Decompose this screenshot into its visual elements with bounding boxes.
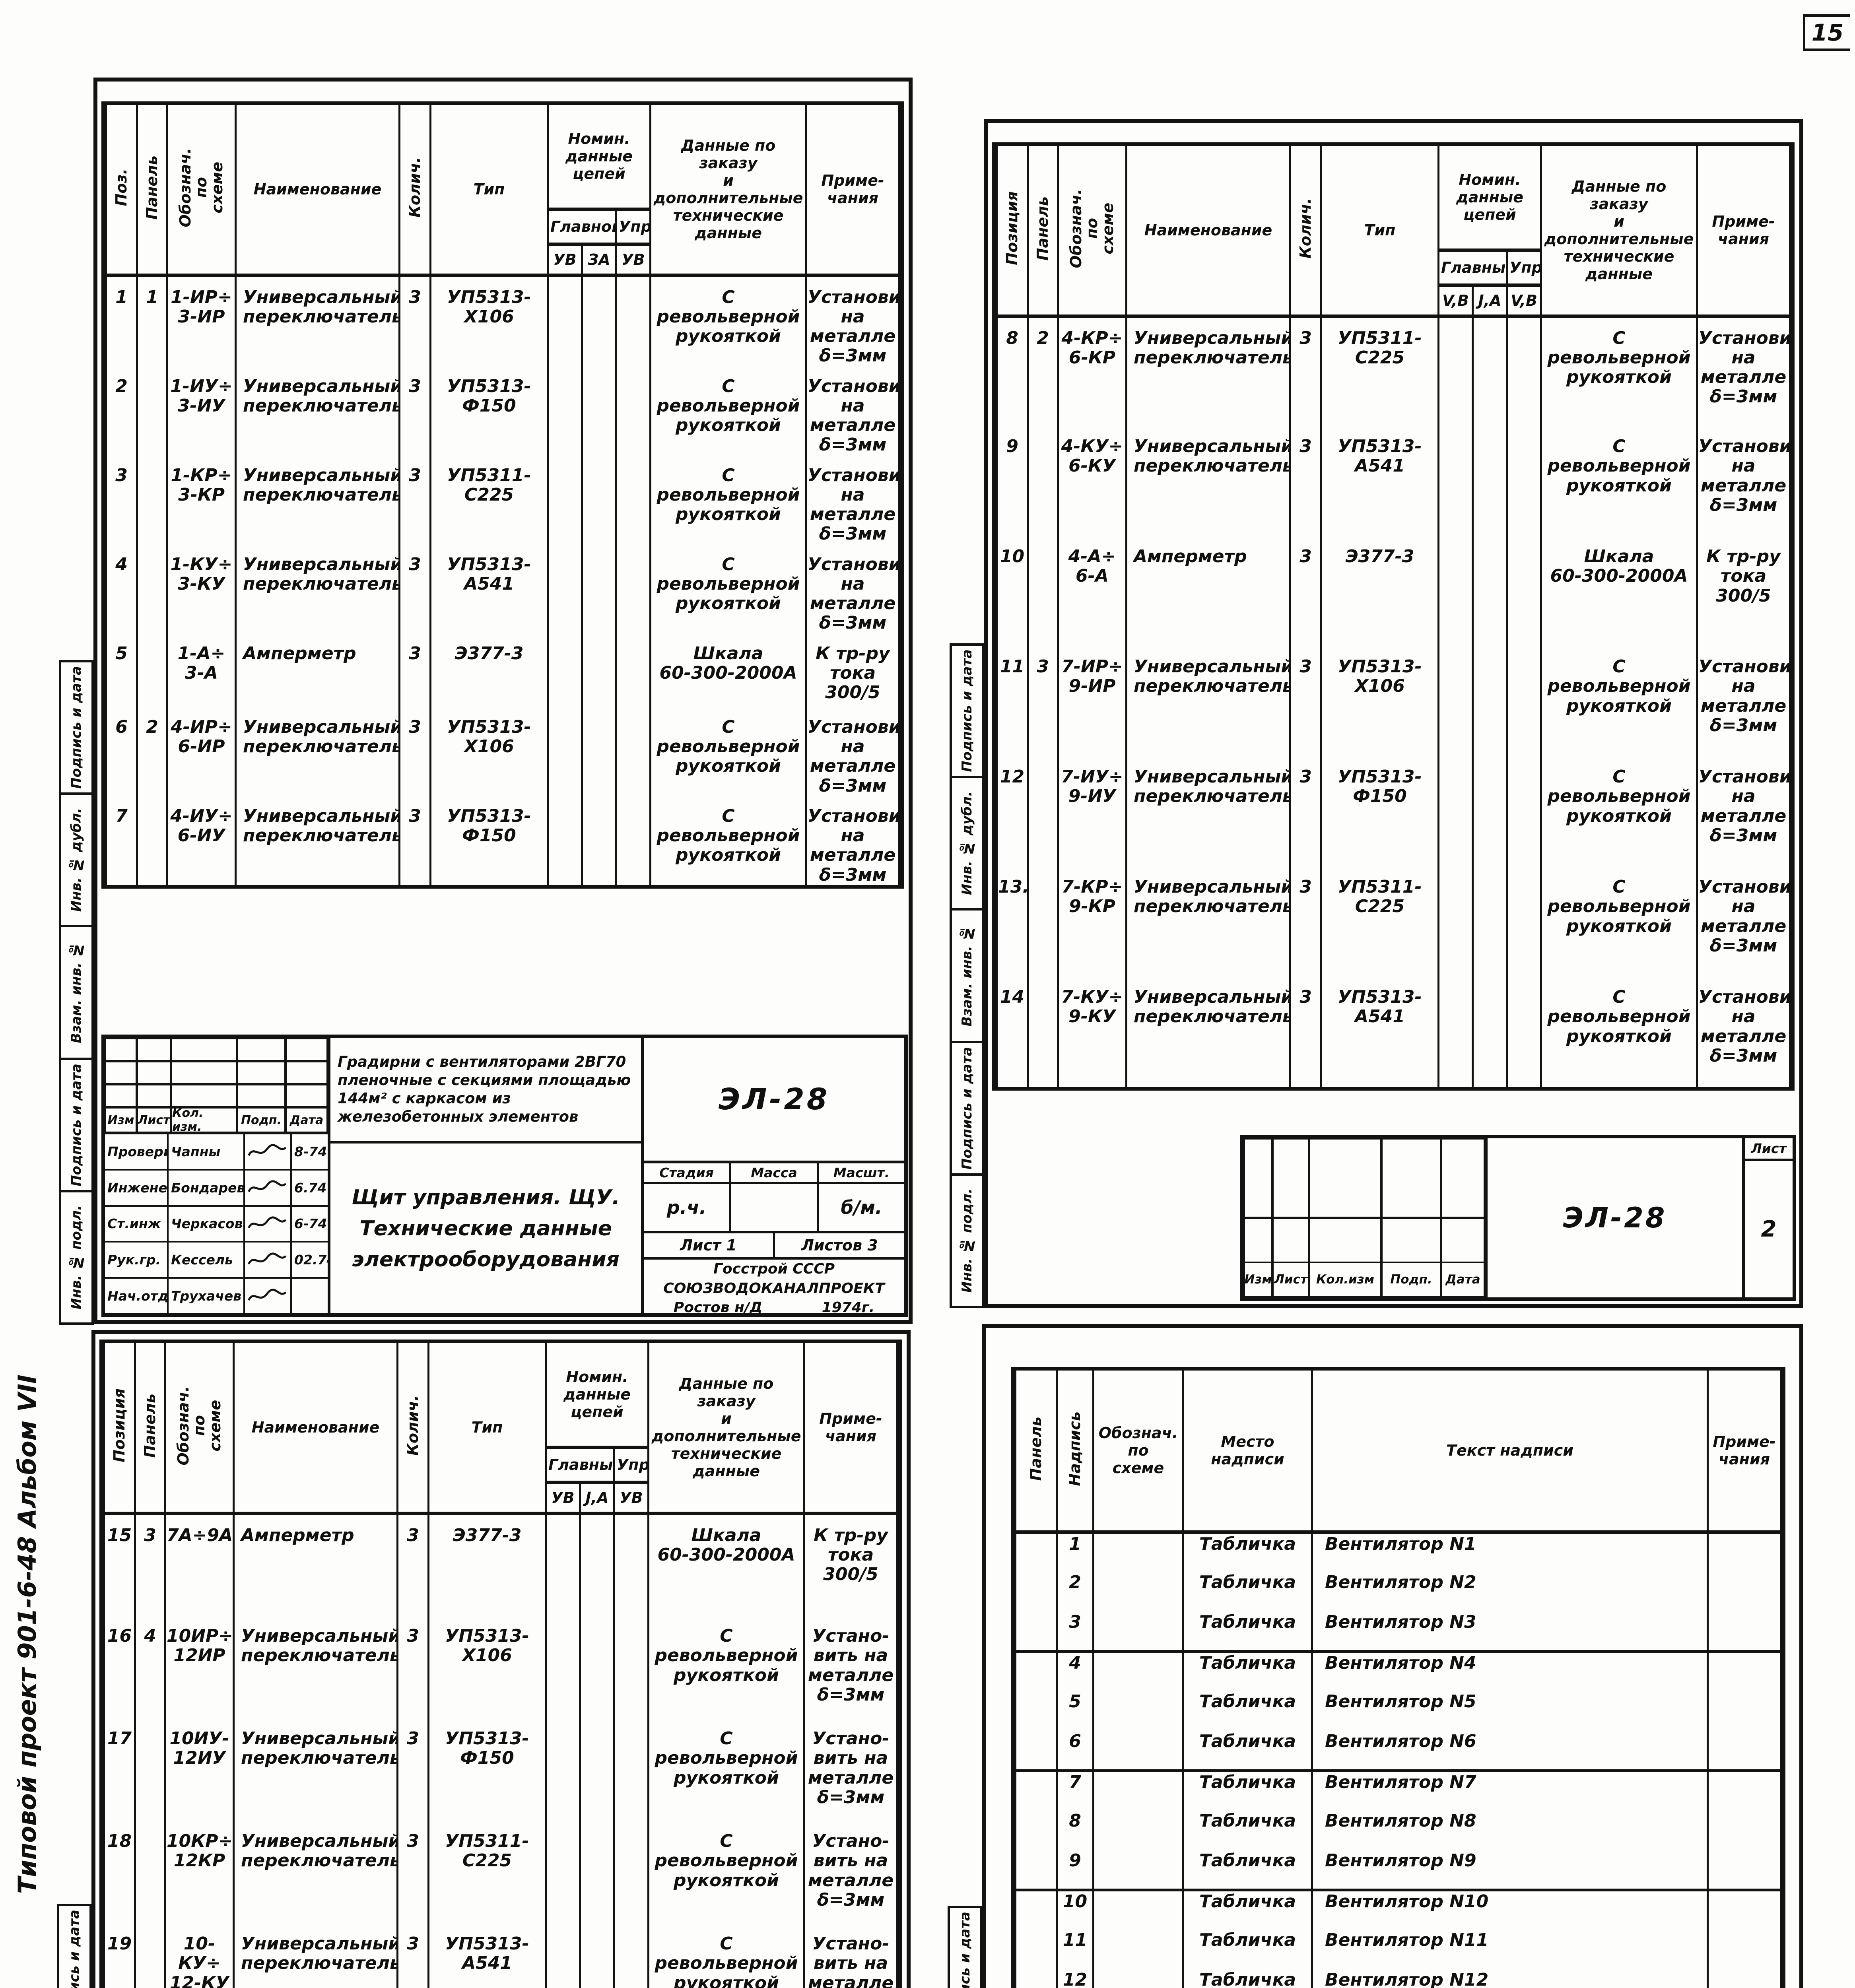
cell-label-no: 5 — [1057, 1691, 1094, 1731]
cell-name: Универсальный переключатель — [236, 707, 400, 796]
col-control-circuit: Упр. — [1507, 250, 1541, 285]
cell-label-no: 1 — [1057, 1532, 1094, 1572]
sheet-count-row: Лист 1 Листов 3 — [644, 1233, 904, 1260]
cell-designation: 7-ИУ÷ 9-ИУ — [1058, 757, 1127, 867]
cell-position: 16 — [104, 1616, 135, 1718]
col-unit-v1: УВ — [548, 244, 582, 275]
cell-u1 — [1439, 757, 1473, 867]
revision-header-cell: Кол. изм. — [171, 1107, 237, 1133]
revision-header-cell: Кол.изм — [1309, 1262, 1381, 1297]
cell-qty: 3 — [400, 633, 431, 707]
col-panel: Панель — [137, 105, 167, 275]
col-notes: Приме- чания — [1697, 146, 1790, 316]
cell-qty: 3 — [400, 366, 431, 455]
cell-qty: 3 — [1290, 646, 1321, 757]
cell-note: К тр-ру тока 300/5 — [1697, 536, 1790, 646]
cell-order-data: Шкала 60-300-2000А — [651, 633, 806, 707]
cell-u3 — [1507, 867, 1541, 977]
signature-date: 02.74 — [292, 1242, 328, 1277]
cell-position: 10 — [997, 536, 1028, 646]
table-row: 15 3 7А÷9А Амперметр 3 Э377-3 Шкала 60-3… — [104, 1513, 897, 1616]
col-main-circuit: Главной — [548, 209, 616, 244]
signature-role: Проверил — [105, 1134, 169, 1169]
cell-note: Устано- вить на металле δ=3мм — [804, 1718, 897, 1821]
cell-panel: 4 — [135, 1616, 165, 1718]
cell-label-text: Вентилятор N12 — [1312, 1970, 1708, 1988]
cell-u2 — [1473, 536, 1507, 646]
cell-order-data: С револьверной рукояткой — [1541, 316, 1697, 426]
col-name: Наименование — [1127, 146, 1290, 316]
cell-designation: 4-ИР÷ 6-ИР — [167, 707, 236, 796]
cell-order-data: Шкала 60-300-2000А — [649, 1513, 804, 1616]
cell-name: Универсальный переключатель — [234, 1718, 398, 1821]
cell-note: Установить на металле δ=3мм — [1697, 646, 1790, 757]
labels-table: Панель Надпись Обознач. по схеме Место н… — [1011, 1367, 1785, 1988]
margin-strip-q2: Подпись и датаИнв. № дубл.Взам. инв. №По… — [950, 643, 985, 1308]
cell-u2 — [1473, 867, 1507, 977]
scale-cell: Масшт.б/м. — [819, 1163, 904, 1231]
cell-panel — [1016, 1970, 1057, 1988]
sheet-label: Лист — [1745, 1138, 1793, 1161]
cell-order-data: Шкала 60-300-2000А — [1541, 536, 1697, 646]
cell-u1 — [546, 1924, 580, 1988]
document-code: ЭЛ-28 — [1488, 1138, 1742, 1297]
revision-header-cell: Подп. — [1381, 1262, 1441, 1297]
cell-label-no: 10 — [1057, 1890, 1094, 1930]
cell-qty: 3 — [1290, 757, 1321, 867]
cell-label-text: Вентилятор N7 — [1312, 1771, 1708, 1811]
cell-label-place: Табличка — [1183, 1771, 1312, 1811]
cell-position: 8 — [997, 316, 1028, 426]
cell-u1 — [1439, 316, 1473, 426]
signature-row: Инженер Бондарева 6.74 — [105, 1169, 328, 1205]
table-row: 8 2 4-КР÷ 6-КР Универсальный переключате… — [997, 316, 1790, 426]
cell-panel — [135, 1821, 165, 1924]
cell-u2 — [580, 1718, 614, 1821]
signature-name: Бондарева — [169, 1171, 245, 1205]
col-name: Наименование — [236, 105, 400, 275]
cell-label-place: Табличка — [1183, 1850, 1312, 1890]
cell-u1 — [546, 1821, 580, 1924]
col-unit-v1: V,В — [1439, 285, 1473, 316]
cell-label-place: Табличка — [1183, 1612, 1312, 1652]
margin-cell: Инв. № дубл. — [59, 792, 94, 925]
cell-position: 7 — [106, 796, 137, 885]
cell-order-data: С револьверной рукояткой — [651, 275, 806, 366]
cell-designation: 1-КУ÷ 3-КУ — [167, 544, 236, 633]
cell-u1 — [1439, 536, 1473, 646]
cell-qty: 3 — [400, 275, 431, 366]
cell-type: Э377-3 — [1321, 536, 1439, 646]
cell-designation: 1-ИР÷ 3-ИР — [167, 275, 236, 366]
cell-designation — [1094, 1890, 1183, 1930]
cell-panel: 1 — [137, 275, 167, 366]
cell-designation — [1094, 1532, 1183, 1572]
signature-row: Проверил Чапны 8-74 — [105, 1133, 328, 1169]
cell-order-data: С револьверной рукояткой — [1541, 977, 1697, 1087]
cell-note: Установить на металле δ=3мм — [806, 455, 899, 544]
cell-note: Устано- вить на металле δ=3мм — [804, 1821, 897, 1924]
col-designation: Обознач. по схеме — [1094, 1371, 1183, 1532]
cell-note: Установить на металле δ=3мм — [806, 796, 899, 885]
label-row: 10 Табличка Вентилятор N10 — [1016, 1890, 1781, 1930]
cell-u3 — [616, 275, 651, 366]
margin-cell: Подпись и дата — [59, 1058, 94, 1190]
cell-label-no: 6 — [1057, 1731, 1094, 1771]
cell-type: УП5313-А541 — [431, 544, 548, 633]
cell-panel — [1016, 1811, 1057, 1850]
col-notes: Приме- чания — [1708, 1371, 1781, 1532]
cell-panel: 3 — [1028, 646, 1058, 757]
cell-u1 — [548, 366, 582, 455]
table-row: 17 10ИУ- 12ИУ Универсальный переключател… — [104, 1718, 897, 1821]
col-nominal-group: Номин. данные цепей — [546, 1343, 649, 1447]
cell-label-no: 8 — [1057, 1811, 1094, 1850]
cell-u2 — [1473, 646, 1507, 757]
cell-note — [1708, 1890, 1781, 1930]
drawing-title: Щит управления. ЩУ. Технические данные э… — [330, 1143, 641, 1313]
cell-u2 — [1473, 316, 1507, 426]
cell-note: Установить на металле δ=3мм — [806, 366, 899, 455]
cell-type: УП5313-Ф150 — [431, 796, 548, 885]
cell-u2 — [580, 1513, 614, 1616]
cell-designation — [1094, 1811, 1183, 1850]
label-row: 5 Табличка Вентилятор N5 — [1016, 1691, 1781, 1731]
cell-designation — [1094, 1691, 1183, 1731]
label-row: 1 Табличка Вентилятор N1 — [1016, 1532, 1781, 1572]
table-row: 19 10-КУ÷ 12-КУ Универсальный переключат… — [104, 1924, 897, 1988]
cell-panel — [137, 796, 167, 885]
cell-position: 14 — [997, 977, 1028, 1087]
cell-u3 — [614, 1513, 649, 1616]
cell-name: Амперметр — [236, 633, 400, 707]
cell-name: Амперметр — [234, 1513, 398, 1616]
margin-strip-q3: Подпись и датаИнв. № дубл.Взам. инв. №По… — [57, 1904, 92, 1988]
cell-panel — [1016, 1731, 1057, 1771]
signature-scribble — [245, 1207, 292, 1241]
cell-note: Установить на металле δ=3мм — [1697, 426, 1790, 536]
cell-qty: 3 — [1290, 867, 1321, 977]
cell-u1 — [1439, 646, 1473, 757]
cell-note — [1708, 1970, 1781, 1988]
signature-name: Трухачев — [169, 1279, 245, 1313]
cell-name: Универсальный переключатель — [234, 1616, 398, 1718]
cell-u1 — [546, 1718, 580, 1821]
cell-order-data: С револьверной рукояткой — [651, 707, 806, 796]
cell-note: К тр-ру тока 300/5 — [804, 1513, 897, 1616]
label-row: 6 Табличка Вентилятор N6 — [1016, 1731, 1781, 1771]
col-nominal-group: Номин. данные цепей — [548, 105, 651, 209]
signature-role: Инженер — [105, 1171, 169, 1205]
table-row: 11 3 7-ИР÷ 9-ИР Универсальный переключат… — [997, 646, 1790, 757]
cell-name: Амперметр — [1127, 536, 1290, 646]
label-row: 11 Табличка Вентилятор N11 — [1016, 1930, 1781, 1970]
cell-type: УП5313-Ф150 — [431, 366, 548, 455]
cell-label-text: Вентилятор N1 — [1312, 1532, 1708, 1572]
col-label-text: Текст надписи — [1312, 1371, 1708, 1532]
cell-name: Универсальный переключатель — [236, 544, 400, 633]
cell-u3 — [1507, 426, 1541, 536]
cell-label-place: Табличка — [1183, 1811, 1312, 1850]
cell-designation — [1094, 1731, 1183, 1771]
cell-name: Универсальный переключатель — [234, 1924, 398, 1988]
label-row: 9 Табличка Вентилятор N9 — [1016, 1850, 1781, 1890]
cell-panel — [1016, 1890, 1057, 1930]
cell-panel — [1016, 1572, 1057, 1612]
sheet2-frame: Позиция Панель Обознач. по схеме Наимено… — [984, 119, 1803, 1308]
signature-role: Рук.гр. — [105, 1242, 169, 1277]
project-name: Градирни с вентиляторами 2ВГ70 пленочные… — [330, 1038, 641, 1143]
cell-u2 — [582, 707, 616, 796]
cell-designation: 4-КУ÷ 6-КУ — [1058, 426, 1127, 536]
table-row: 9 4-КУ÷ 6-КУ Универсальный переключатель… — [997, 426, 1790, 536]
cell-label-no: 2 — [1057, 1572, 1094, 1612]
cell-label-place: Табличка — [1183, 1970, 1312, 1988]
table-row: 4 1-КУ÷ 3-КУ Универсальный переключатель… — [106, 544, 899, 633]
cell-panel — [1016, 1691, 1057, 1731]
document-code: ЭЛ-28 — [644, 1038, 904, 1163]
cell-note — [1708, 1612, 1781, 1652]
cell-designation: 10ИР÷ 12ИР — [165, 1616, 234, 1718]
margin-cell: Подпись и дата — [59, 660, 94, 792]
signature-date: 8-74 — [292, 1134, 328, 1169]
cell-note — [1708, 1771, 1781, 1811]
cell-qty: 3 — [400, 544, 431, 633]
cell-order-data: С револьверной рукояткой — [649, 1616, 804, 1718]
cell-panel — [1028, 977, 1058, 1087]
col-panel: Панель — [135, 1343, 165, 1513]
cell-qty: 3 — [398, 1924, 429, 1988]
cell-u3 — [616, 707, 651, 796]
cell-designation: 7А÷9А — [165, 1513, 234, 1616]
col-unit-a: ЗА — [582, 244, 616, 275]
cell-note — [1708, 1930, 1781, 1970]
signature-role: Нач.отд — [105, 1279, 169, 1313]
signature-scribble — [245, 1134, 292, 1169]
cell-type: Э377-3 — [429, 1513, 546, 1616]
cell-panel — [1028, 867, 1058, 977]
cell-qty: 3 — [400, 707, 431, 796]
cell-note: Устано- вить на металле δ=3мм — [804, 1924, 897, 1988]
cell-u2 — [580, 1924, 614, 1988]
cell-panel — [137, 455, 167, 544]
table-row: 18 10КР÷ 12КР Универсальный переключател… — [104, 1821, 897, 1924]
cell-position: 19 — [104, 1924, 135, 1988]
cell-qty: 3 — [400, 455, 431, 544]
signature-row: Ст.инж Черкасова 6-74 — [105, 1205, 328, 1241]
signature-name: Кессель — [169, 1242, 245, 1277]
cell-label-no: 12 — [1057, 1970, 1094, 1988]
cell-u1 — [548, 633, 582, 707]
cell-u2 — [580, 1821, 614, 1924]
cell-u1 — [1439, 867, 1473, 977]
cell-designation: 1-КР÷ 3-КР — [167, 455, 236, 544]
cell-name: Универсальный переключатель — [236, 275, 400, 366]
col-position: Позиция — [104, 1343, 135, 1513]
cell-type: УП5313-Х106 — [431, 707, 548, 796]
margin-cell: Взам. инв. № — [59, 925, 94, 1057]
cell-label-text: Вентилятор N4 — [1312, 1652, 1708, 1691]
cell-type: Э377-3 — [431, 633, 548, 707]
cell-panel — [135, 1718, 165, 1821]
label-row: 2 Табличка Вентилятор N2 — [1016, 1572, 1781, 1612]
cell-name: Универсальный переключатель — [236, 366, 400, 455]
table-row: 12 7-ИУ÷ 9-ИУ Универсальный переключател… — [997, 757, 1790, 867]
cell-panel — [137, 544, 167, 633]
cell-position: 12 — [997, 757, 1028, 867]
cell-panel — [1016, 1532, 1057, 1572]
cell-type: УП5313-А541 — [1321, 426, 1439, 536]
cell-designation: 1-А÷ 3-А — [167, 633, 236, 707]
cell-u2 — [1473, 426, 1507, 536]
cell-type: УП5313-Ф150 — [1321, 757, 1439, 867]
cell-u2 — [1473, 977, 1507, 1087]
cell-u3 — [1507, 536, 1541, 646]
cell-position: 1 — [106, 275, 137, 366]
margin-cell: Инв. № подл. — [950, 1173, 985, 1308]
cell-u3 — [616, 544, 651, 633]
cell-type: УП5313-Х106 — [431, 275, 548, 366]
cell-label-place: Табличка — [1183, 1691, 1312, 1731]
cell-qty: 3 — [398, 1616, 429, 1718]
cell-type: УП5313-Ф150 — [429, 1718, 546, 1821]
table-row: 1 1 1-ИР÷ 3-ИР Универсальный переключате… — [106, 275, 899, 366]
cell-designation — [1094, 1850, 1183, 1890]
col-type: Тип — [431, 105, 548, 275]
col-notes: Приме- чания — [804, 1343, 897, 1513]
cell-u2 — [582, 275, 616, 366]
cell-u1 — [548, 796, 582, 885]
cell-u2 — [582, 796, 616, 885]
col-type: Тип — [429, 1343, 546, 1513]
cell-panel: 3 — [135, 1513, 165, 1616]
label-row: 3 Табличка Вентилятор N3 — [1016, 1612, 1781, 1652]
cell-u3 — [614, 1821, 649, 1924]
cell-u3 — [1507, 757, 1541, 867]
standard-project-label: Типовой проект 901-6-48 Альбом VII — [7, 1336, 47, 1932]
cell-label-place: Табличка — [1183, 1731, 1312, 1771]
cell-position: 13. — [997, 867, 1028, 977]
col-notes: Приме- чания — [806, 105, 899, 275]
cell-panel — [1016, 1930, 1057, 1970]
label-row: 4 Табличка Вентилятор N4 — [1016, 1652, 1781, 1691]
table-row: 7 4-ИУ÷ 6-ИУ Универсальный переключатель… — [106, 796, 899, 885]
cell-designation — [1094, 1771, 1183, 1811]
signature-name: Черкасова — [169, 1207, 245, 1241]
cell-order-data: С револьверной рукояткой — [649, 1924, 804, 1988]
margin-cell: Подпись и дата — [950, 1041, 985, 1173]
cell-note — [1708, 1811, 1781, 1850]
col-main-circuit: Главный — [1439, 250, 1507, 285]
cell-order-data: С револьверной рукояткой — [649, 1821, 804, 1924]
col-type: Тип — [1321, 146, 1439, 316]
revision-header-cell: Изм — [1244, 1262, 1272, 1297]
table-row: 14 7-КУ÷ 9-КУ Универсальный переключател… — [997, 977, 1790, 1087]
cell-label-text: Вентилятор N9 — [1312, 1850, 1708, 1890]
cell-note: Установить на металле δ=3мм — [1697, 867, 1790, 977]
cell-u1 — [546, 1513, 580, 1616]
cell-designation — [1094, 1970, 1183, 1988]
table-row: 10 4-А÷ 6-А Амперметр 3 Э377-3 Шкала 60-… — [997, 536, 1790, 646]
cell-order-data: С револьверной рукояткой — [1541, 757, 1697, 867]
cell-type: УП5311-С225 — [1321, 867, 1439, 977]
cell-label-place: Табличка — [1183, 1652, 1312, 1691]
col-main-circuit: Главный — [546, 1447, 614, 1482]
cell-type: УП5313-Х106 — [1321, 646, 1439, 757]
cell-designation: 7-ИР÷ 9-ИР — [1058, 646, 1127, 757]
signature-row: Нач.отд Трухачев — [105, 1277, 328, 1313]
cell-label-text: Вентилятор N5 — [1312, 1691, 1708, 1731]
revision-header-cell: Подп. — [237, 1107, 286, 1133]
stage-cell: Стадияр.ч. — [644, 1163, 731, 1231]
cell-note: Установить на металле δ=3мм — [1697, 757, 1790, 867]
cell-position: 3 — [106, 455, 137, 544]
cell-type: УП5313-Х106 — [429, 1616, 546, 1718]
sheet2-table: Позиция Панель Обознач. по схеме Наимено… — [992, 142, 1795, 1091]
col-unit-a: J,А — [1473, 285, 1507, 316]
cell-note — [1708, 1691, 1781, 1731]
cell-u2 — [582, 366, 616, 455]
cell-name: Универсальный переключатель — [236, 796, 400, 885]
margin-strip-q4: Подпись и датаИнв. № дубл.Взам. инв. №По… — [948, 1906, 983, 1988]
signature-name: Чапны — [169, 1134, 245, 1169]
cell-name: Универсальный переключатель — [1127, 867, 1290, 977]
cell-designation — [1094, 1572, 1183, 1612]
cell-label-no: 3 — [1057, 1612, 1094, 1652]
sheet1-title-block: ИзмЛистКол. изм.Подп.Дата Проверил Чапны… — [101, 1035, 908, 1317]
col-control-circuit: Упр. — [614, 1447, 649, 1482]
cell-position: 15 — [104, 1513, 135, 1616]
col-designation: Обознач. по схеме — [1058, 146, 1127, 316]
cell-position: 17 — [104, 1718, 135, 1821]
col-label-no: Надпись — [1057, 1371, 1094, 1532]
cell-u3 — [1507, 646, 1541, 757]
sheet2-mini-stamp: ИзмЛистКол.измПодп.Дата ЭЛ-28 Лист 2 — [1240, 1135, 1796, 1301]
org-line1: Госстрой СССР — [644, 1260, 904, 1279]
cell-panel — [1028, 536, 1058, 646]
cell-label-no: 7 — [1057, 1771, 1094, 1811]
sheet-total: Листов 3 — [775, 1233, 904, 1257]
sheet1-frame: Поз. Панель Обознач. по схеме Наименован… — [93, 78, 913, 1324]
cell-order-data: С револьверной рукояткой — [1541, 646, 1697, 757]
cell-name: Универсальный переключатель — [1127, 426, 1290, 536]
cell-qty: 3 — [400, 796, 431, 885]
cell-panel — [137, 366, 167, 455]
cell-designation: 10ИУ- 12ИУ — [165, 1718, 234, 1821]
sheet-number: Лист 1 — [644, 1233, 775, 1257]
col-order-data: Данные по заказу и дополнительные технич… — [1541, 146, 1697, 316]
signature-scribble — [245, 1279, 292, 1313]
cell-name: Универсальный переключатель — [236, 455, 400, 544]
cell-designation: 10КР÷ 12КР — [165, 1821, 234, 1924]
cell-order-data: С револьверной рукояткой — [1541, 867, 1697, 977]
page-number: 15 — [1812, 19, 1844, 46]
cell-order-data: С револьверной рукояткой — [1541, 426, 1697, 536]
cell-note: Установить на металле δ=3мм — [1697, 316, 1790, 426]
cell-panel — [135, 1924, 165, 1988]
col-panel: Панель — [1016, 1371, 1057, 1532]
cell-u1 — [548, 544, 582, 633]
col-designation: Обознач. по схеме — [167, 105, 236, 275]
cell-note: Установить на металле δ=3мм — [1697, 977, 1790, 1087]
cell-u1 — [548, 455, 582, 544]
table-row: 5 1-А÷ 3-А Амперметр 3 Э377-3 Шкала 60-3… — [106, 633, 899, 707]
cell-note — [1708, 1731, 1781, 1771]
cell-u2 — [1473, 757, 1507, 867]
cell-note: Установить на металле δ=3мм — [806, 707, 899, 796]
margin-cell: Инв. № дубл. — [950, 776, 985, 908]
col-qty: Колич. — [400, 105, 431, 275]
